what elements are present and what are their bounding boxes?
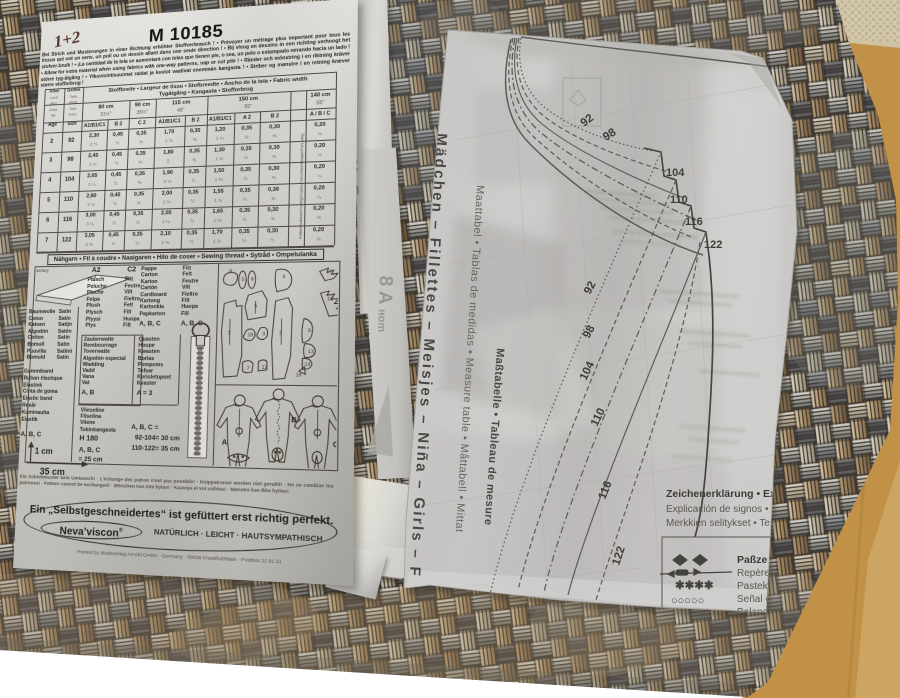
svg-text:Merkkien selitykset • Te: Merkkien selitykset • Te: [666, 518, 770, 529]
svg-text:✱✱✱✱: ✱✱✱✱: [675, 580, 714, 592]
svg-text:Explicación de signos •: Explicación de signos •: [666, 504, 769, 515]
svg-text:116: 116: [685, 216, 703, 228]
svg-text:Repère: Repère: [737, 568, 770, 579]
svg-text:122: 122: [704, 239, 722, 251]
svg-text:110: 110: [670, 194, 688, 206]
svg-text:Zeichenerklärung • Ex: Zeichenerklärung • Ex: [666, 488, 776, 500]
svg-text:104: 104: [666, 167, 685, 179]
svg-text:○○○○○: ○○○○○: [671, 595, 704, 607]
svg-text:Paßze: Paßze: [737, 554, 768, 566]
svg-text:Pastek: Pastek: [737, 581, 769, 592]
svg-text:Señal d: Señal d: [737, 594, 771, 605]
